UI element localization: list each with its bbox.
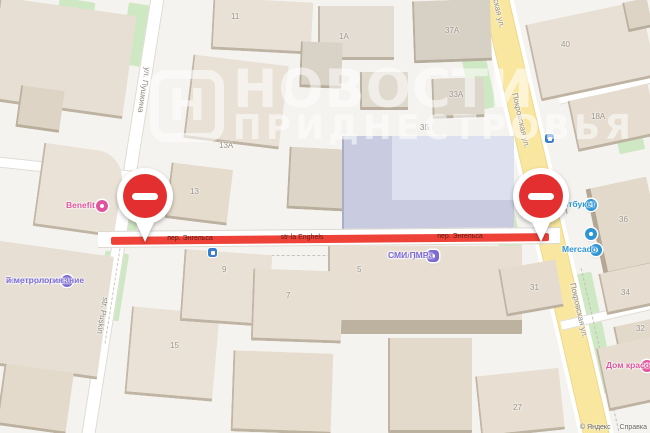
- building-number: 33А: [449, 90, 463, 99]
- poi-label-line2[interactable]: и метрология: [6, 275, 63, 285]
- building-number: 34: [621, 288, 630, 297]
- shop-icon[interactable]: [585, 228, 597, 240]
- bus-stop-icon[interactable]: [545, 134, 554, 143]
- poi-label[interactable]: Mercado: [562, 244, 597, 254]
- building: [360, 72, 408, 110]
- no-entry-pin-right[interactable]: [513, 168, 569, 240]
- building-number: 3Б: [420, 123, 430, 132]
- no-entry-pin-left[interactable]: [117, 168, 173, 240]
- street-label-engels-center: str-la Enghels: [262, 234, 342, 242]
- building: [15, 85, 64, 133]
- building-number: 27: [513, 403, 522, 412]
- poi-label[interactable]: Benefit: [66, 200, 95, 210]
- building-number: 11: [231, 12, 239, 21]
- shop-icon[interactable]: [96, 200, 108, 212]
- building: [475, 368, 565, 433]
- building: [33, 143, 126, 238]
- no-entry-bar: [528, 193, 554, 200]
- building-number: 37А: [445, 26, 459, 35]
- building: [388, 338, 472, 433]
- building-number: 15: [170, 341, 179, 350]
- building: [251, 268, 343, 343]
- building: [0, 240, 114, 379]
- building: [586, 177, 650, 276]
- building: [0, 363, 74, 433]
- yandex-copyright-link[interactable]: © Яндекс: [580, 424, 611, 431]
- building-number: 40: [561, 40, 570, 49]
- building: [183, 54, 289, 149]
- street-label-engels-right: пер. Энгельса: [420, 233, 500, 241]
- pin-tail: [134, 218, 156, 242]
- poi-label-line2[interactable]: СМИ ПМР: [388, 250, 428, 260]
- building-number: 32: [636, 324, 645, 333]
- building-number: 36: [619, 215, 628, 224]
- building: [231, 350, 334, 433]
- poi-label[interactable]: Дом красоты: [606, 360, 650, 370]
- building: [211, 0, 314, 55]
- building-number: 13: [190, 187, 199, 196]
- building: [165, 162, 233, 225]
- help-link[interactable]: Справка: [620, 424, 647, 431]
- building-selected-roof: [392, 136, 514, 200]
- building: [286, 147, 345, 212]
- building-number: 13А: [219, 141, 233, 150]
- building-number: 1А: [339, 32, 349, 41]
- map-attribution: © Яндекс Справка: [573, 424, 647, 431]
- map-canvas[interactable]: пер. Энгельса str-la Enghels пер. Энгель…: [0, 0, 650, 433]
- building: [299, 41, 343, 88]
- building-number: 5: [357, 265, 361, 274]
- no-entry-bar: [132, 193, 158, 200]
- building-number: 31: [530, 283, 539, 292]
- pin-tail: [530, 218, 552, 242]
- building-number: 9: [222, 265, 226, 274]
- building-number: 18А: [591, 112, 605, 121]
- bus-stop-icon[interactable]: [208, 248, 217, 257]
- building-number: 7: [286, 291, 290, 300]
